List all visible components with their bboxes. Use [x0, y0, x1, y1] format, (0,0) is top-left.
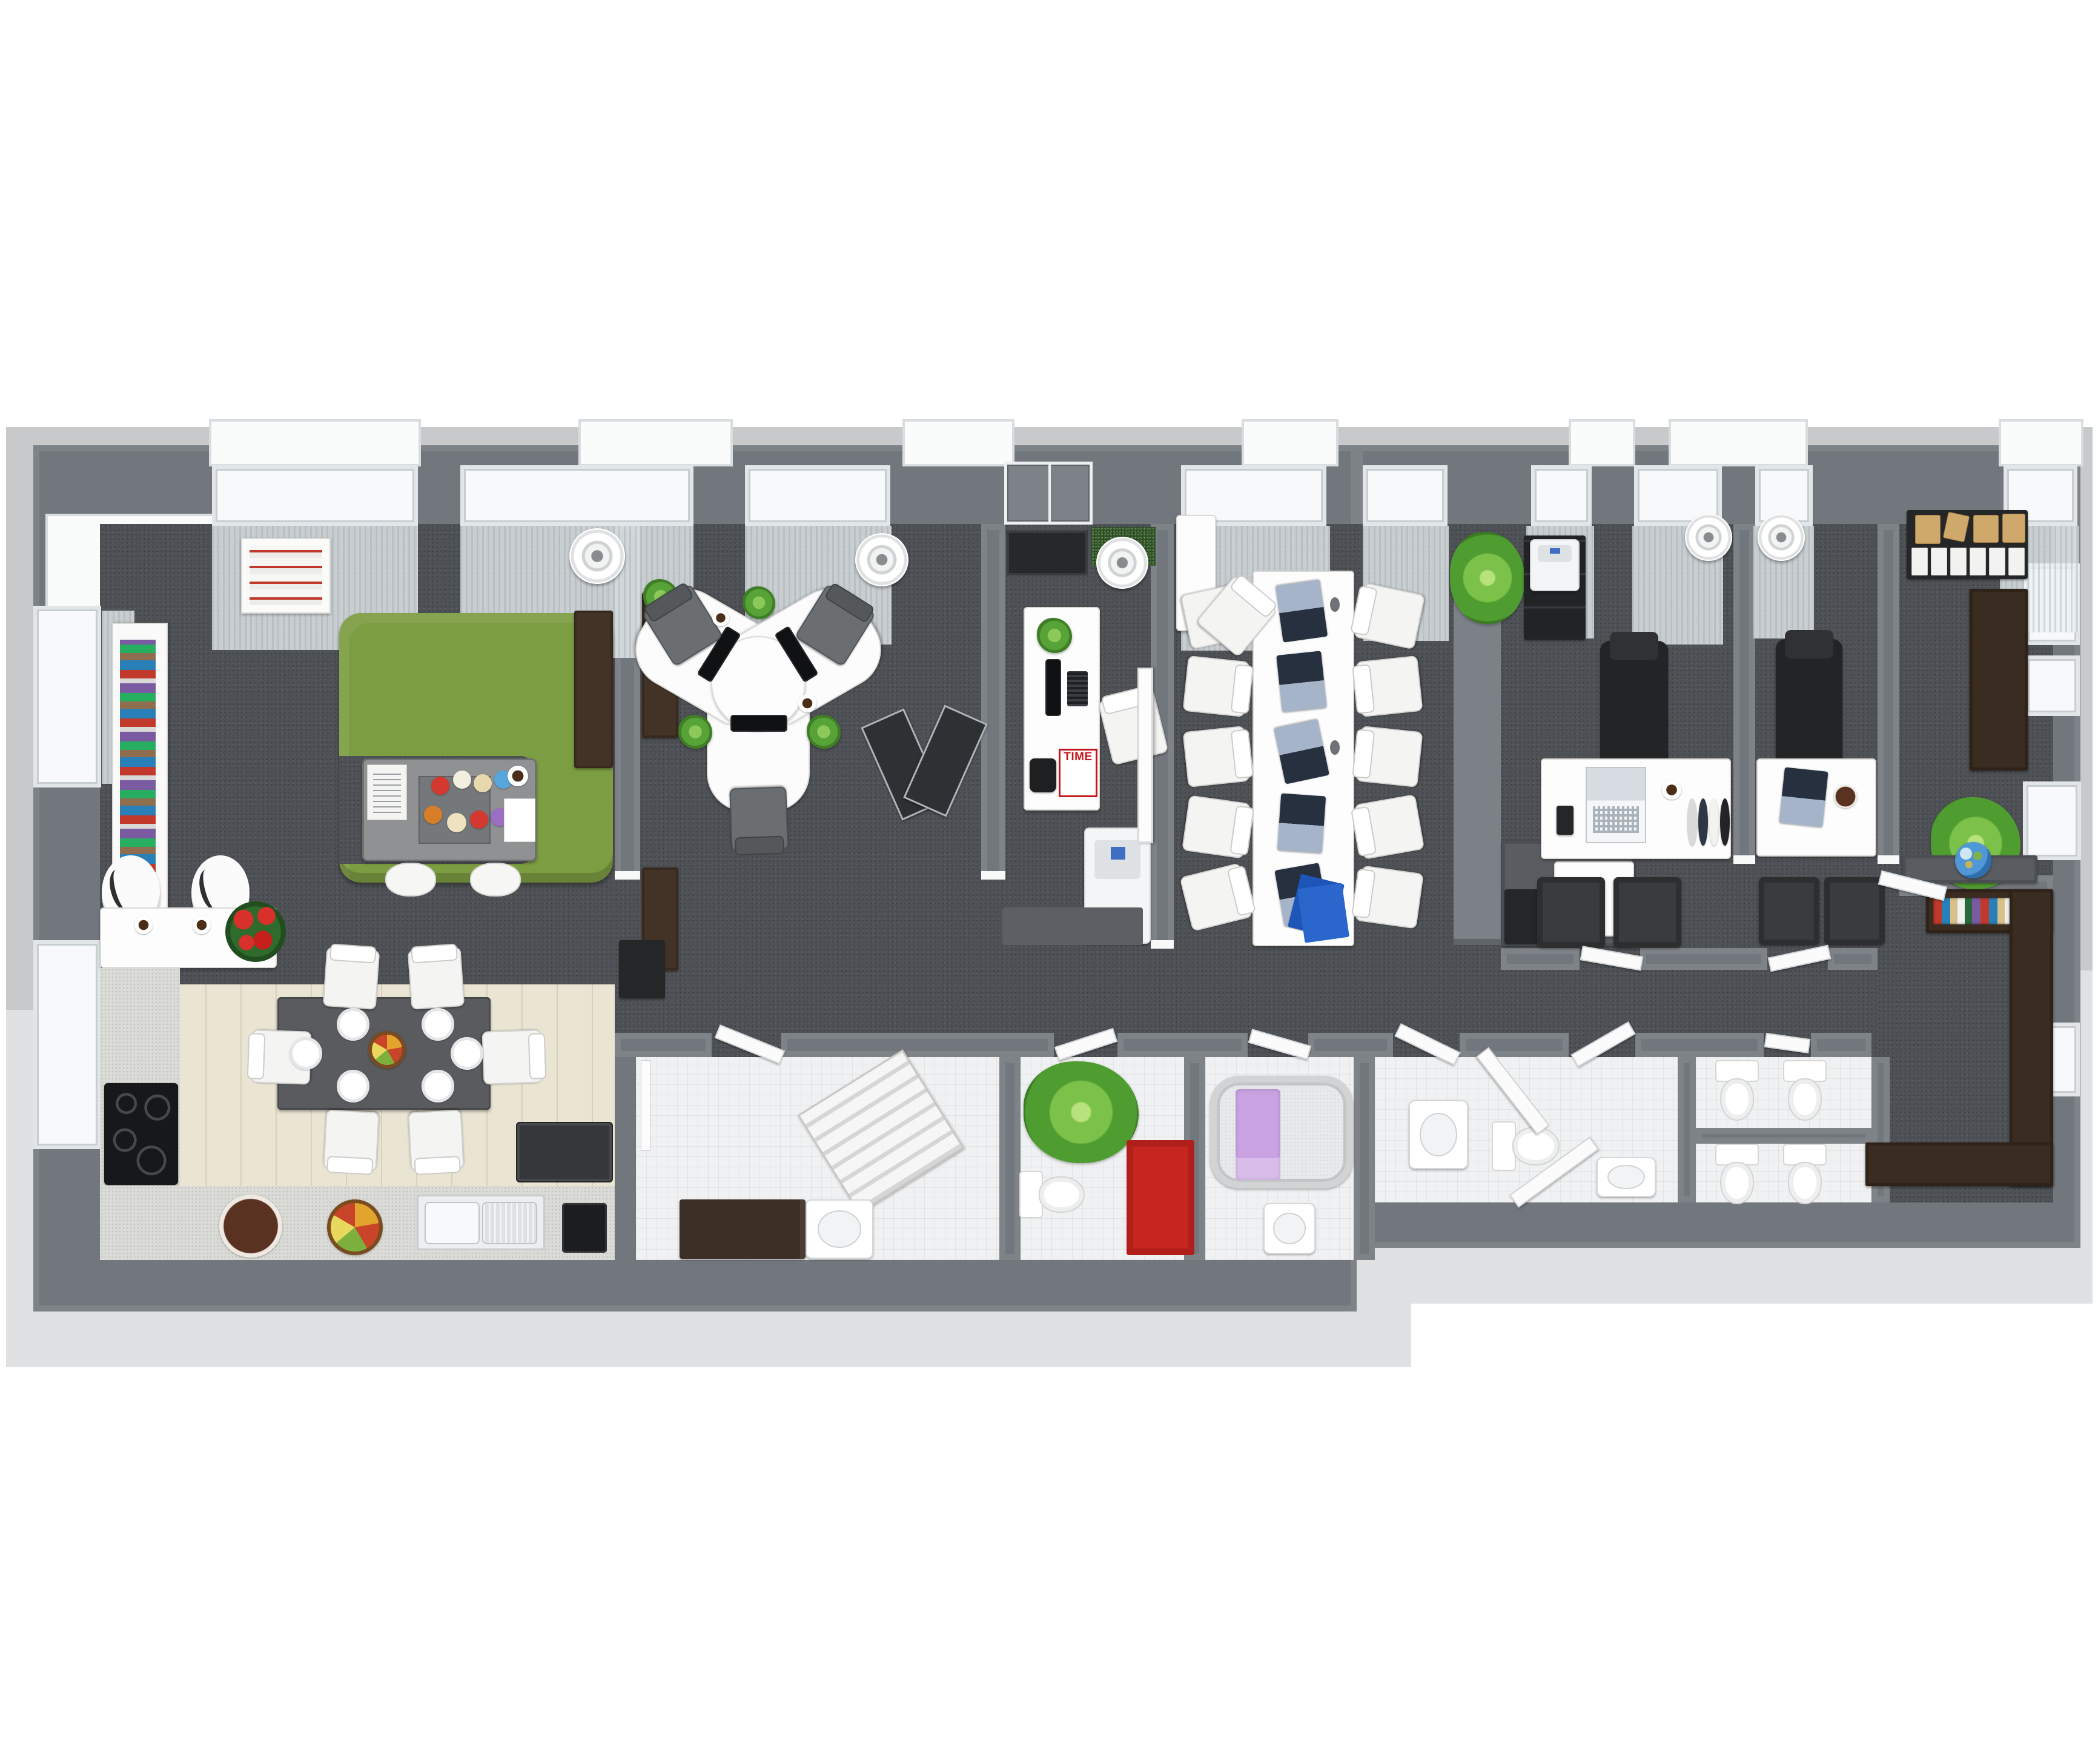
plate — [290, 1037, 322, 1070]
coaster — [431, 777, 449, 795]
toilet — [1492, 1121, 1560, 1171]
floor-lamp — [1096, 537, 1148, 589]
wall-offices-bottom — [1501, 948, 1580, 970]
wall-bath-top — [1811, 1033, 1871, 1057]
guest-armchair — [1824, 877, 1885, 945]
fruit-bowl — [368, 1031, 406, 1069]
wall-cap — [1878, 855, 1899, 864]
time-magazine-cover: TIME — [1059, 749, 1097, 797]
stool — [385, 863, 436, 897]
globe — [1955, 842, 1991, 878]
wall-bath-top — [1308, 1033, 1393, 1057]
floor-lamp — [1758, 514, 1805, 561]
doormat — [1007, 531, 1088, 575]
toilet — [1019, 1171, 1085, 1218]
window-bay — [578, 419, 733, 466]
coffee-cup — [134, 916, 153, 934]
entrance-door — [1004, 462, 1093, 525]
mouse — [1330, 597, 1340, 612]
black-cabinet — [619, 940, 665, 998]
plate — [422, 1070, 454, 1102]
dark-rug — [1002, 907, 1143, 945]
coffee-cup — [193, 916, 211, 934]
window — [1531, 465, 1592, 526]
desktop-printer — [1530, 539, 1580, 591]
coaster — [447, 813, 466, 832]
pedestal-sink — [1409, 1100, 1468, 1169]
wall-bath-top — [1117, 1033, 1248, 1057]
dining-chair — [323, 947, 380, 1010]
white-box — [1970, 548, 1986, 575]
floor-lamp — [1685, 514, 1732, 561]
wall-cap — [1733, 855, 1755, 864]
training-chair — [1355, 655, 1423, 717]
coffee-cup — [798, 694, 816, 712]
floor-lamp — [569, 528, 625, 584]
window — [460, 465, 693, 526]
wall-offices-bottom — [1640, 948, 1767, 970]
fruit-platter — [327, 1199, 383, 1255]
laptop — [1277, 794, 1326, 854]
training-chair — [1355, 726, 1423, 787]
window — [212, 465, 418, 526]
coaster — [470, 811, 488, 829]
wall-hung-toilet — [1783, 1060, 1827, 1121]
wall-hung-toilet — [1783, 1144, 1827, 1204]
whiteboard — [1137, 668, 1153, 843]
wooden-organizer — [1973, 515, 1999, 543]
wall-hung-toilet — [1715, 1144, 1759, 1204]
stool — [470, 863, 521, 897]
bookshelf-den — [2010, 889, 2053, 1186]
wall-office2-storage — [1878, 524, 1899, 863]
window-bay — [1569, 419, 1635, 466]
book — [1698, 798, 1708, 846]
coaster — [1834, 785, 1857, 808]
palm-plant — [1024, 1061, 1139, 1163]
white-box — [1911, 548, 1928, 575]
plate — [422, 1008, 454, 1041]
desk-plant — [807, 715, 841, 749]
window — [745, 465, 890, 526]
monitor — [1047, 660, 1060, 715]
guest-armchair — [1759, 877, 1819, 945]
floor-plan-canvas: TIME — [0, 0, 2098, 1764]
training-chair — [1182, 795, 1251, 858]
dining-chair — [408, 1110, 464, 1172]
book — [1709, 798, 1719, 846]
wall-bath-top — [1460, 1033, 1569, 1057]
wall-cap — [1151, 940, 1174, 949]
open-laptop — [1586, 767, 1646, 843]
sideboard — [574, 611, 613, 768]
wall-offices-bottom — [1828, 948, 1878, 970]
dining-chair — [408, 947, 465, 1010]
dining-chair — [323, 1110, 379, 1172]
white-box — [1950, 548, 1967, 575]
window — [1363, 465, 1448, 526]
red-rug — [1127, 1140, 1194, 1255]
palm-plant — [1450, 532, 1525, 624]
wall-office-reception — [981, 524, 1005, 878]
window-bay — [902, 419, 1014, 466]
desk-phone — [1557, 806, 1573, 835]
bathtub — [1210, 1076, 1353, 1189]
kitchen-sink — [417, 1195, 545, 1250]
sink — [806, 1199, 873, 1259]
wall-bath-top — [615, 1033, 712, 1057]
wall-bath-top — [1635, 1033, 1764, 1057]
partition-wall — [1454, 591, 1501, 945]
wall-wc2-staffwc — [1678, 1057, 1696, 1202]
paper-sheet — [504, 798, 535, 842]
wall-sink — [1263, 1203, 1315, 1254]
book — [1720, 798, 1730, 846]
window-bay — [1999, 419, 2083, 466]
coaster — [424, 806, 442, 824]
guest-armchair — [1613, 877, 1681, 947]
training-chair — [1354, 794, 1425, 860]
office-chair — [729, 786, 789, 851]
guest-armchair — [1537, 877, 1605, 947]
newspaper — [367, 764, 407, 820]
laptop — [1276, 651, 1326, 712]
plate — [451, 1037, 483, 1070]
coffee-cup — [508, 766, 528, 786]
training-chair — [1355, 865, 1424, 929]
desk-plant — [1037, 618, 1072, 653]
cooktop — [104, 1083, 178, 1185]
executive-chair — [1600, 641, 1668, 769]
purple-towel — [1236, 1089, 1280, 1180]
plate — [337, 1008, 369, 1041]
mouse — [1330, 740, 1340, 755]
red-flower-arrangement — [225, 901, 286, 962]
wall-office1-office2 — [1733, 524, 1755, 863]
training-chair — [1182, 726, 1249, 787]
wardrobe — [1970, 589, 2028, 771]
coaster — [453, 771, 471, 789]
white-box — [1931, 548, 1947, 575]
training-chair — [1182, 655, 1249, 717]
desk-plant — [743, 586, 775, 619]
wall-bath2-wc2 — [1354, 1057, 1375, 1260]
bath-vanity — [680, 1199, 806, 1259]
window-bay — [1242, 419, 1339, 466]
wall-hung-toilet — [1715, 1060, 1759, 1121]
coaster — [474, 774, 492, 792]
white-box — [2008, 548, 2025, 575]
cake-plate — [219, 1195, 282, 1258]
magazine-rack — [241, 538, 331, 614]
floor-lamp — [855, 533, 908, 586]
laptop — [1276, 580, 1328, 642]
bag — [1030, 758, 1056, 792]
dining-chair — [481, 1029, 543, 1084]
monitor — [732, 716, 786, 731]
wooden-organizer — [2002, 514, 2025, 543]
wall-cap — [615, 871, 640, 880]
desk-plant — [678, 715, 712, 749]
executive-chair — [1776, 639, 1842, 766]
coffee-cup — [712, 609, 729, 626]
wall-bath-top — [781, 1033, 1054, 1057]
window — [2024, 655, 2080, 716]
window — [2023, 781, 2081, 860]
bookshelf-den — [1865, 1142, 2053, 1186]
white-box — [1989, 548, 2005, 575]
keyboard — [1067, 671, 1088, 706]
coffee-machine — [562, 1203, 607, 1253]
coffee-cup — [1662, 780, 1681, 800]
blue-papers — [1297, 883, 1349, 943]
book — [1687, 798, 1697, 846]
wooden-organizer — [1915, 515, 1941, 544]
window-bay — [1669, 419, 1808, 466]
window — [33, 940, 101, 1149]
plate — [337, 1070, 369, 1102]
laptop — [1779, 767, 1828, 827]
window — [33, 606, 101, 787]
window-bay — [209, 419, 421, 466]
wall-staffwc-divider — [1696, 1128, 1871, 1144]
fridge — [516, 1122, 613, 1182]
wall-utility-wc1 — [999, 1057, 1021, 1260]
corner-sink — [1597, 1157, 1656, 1197]
shower-panel — [641, 1060, 650, 1151]
wall-cap — [981, 871, 1005, 880]
